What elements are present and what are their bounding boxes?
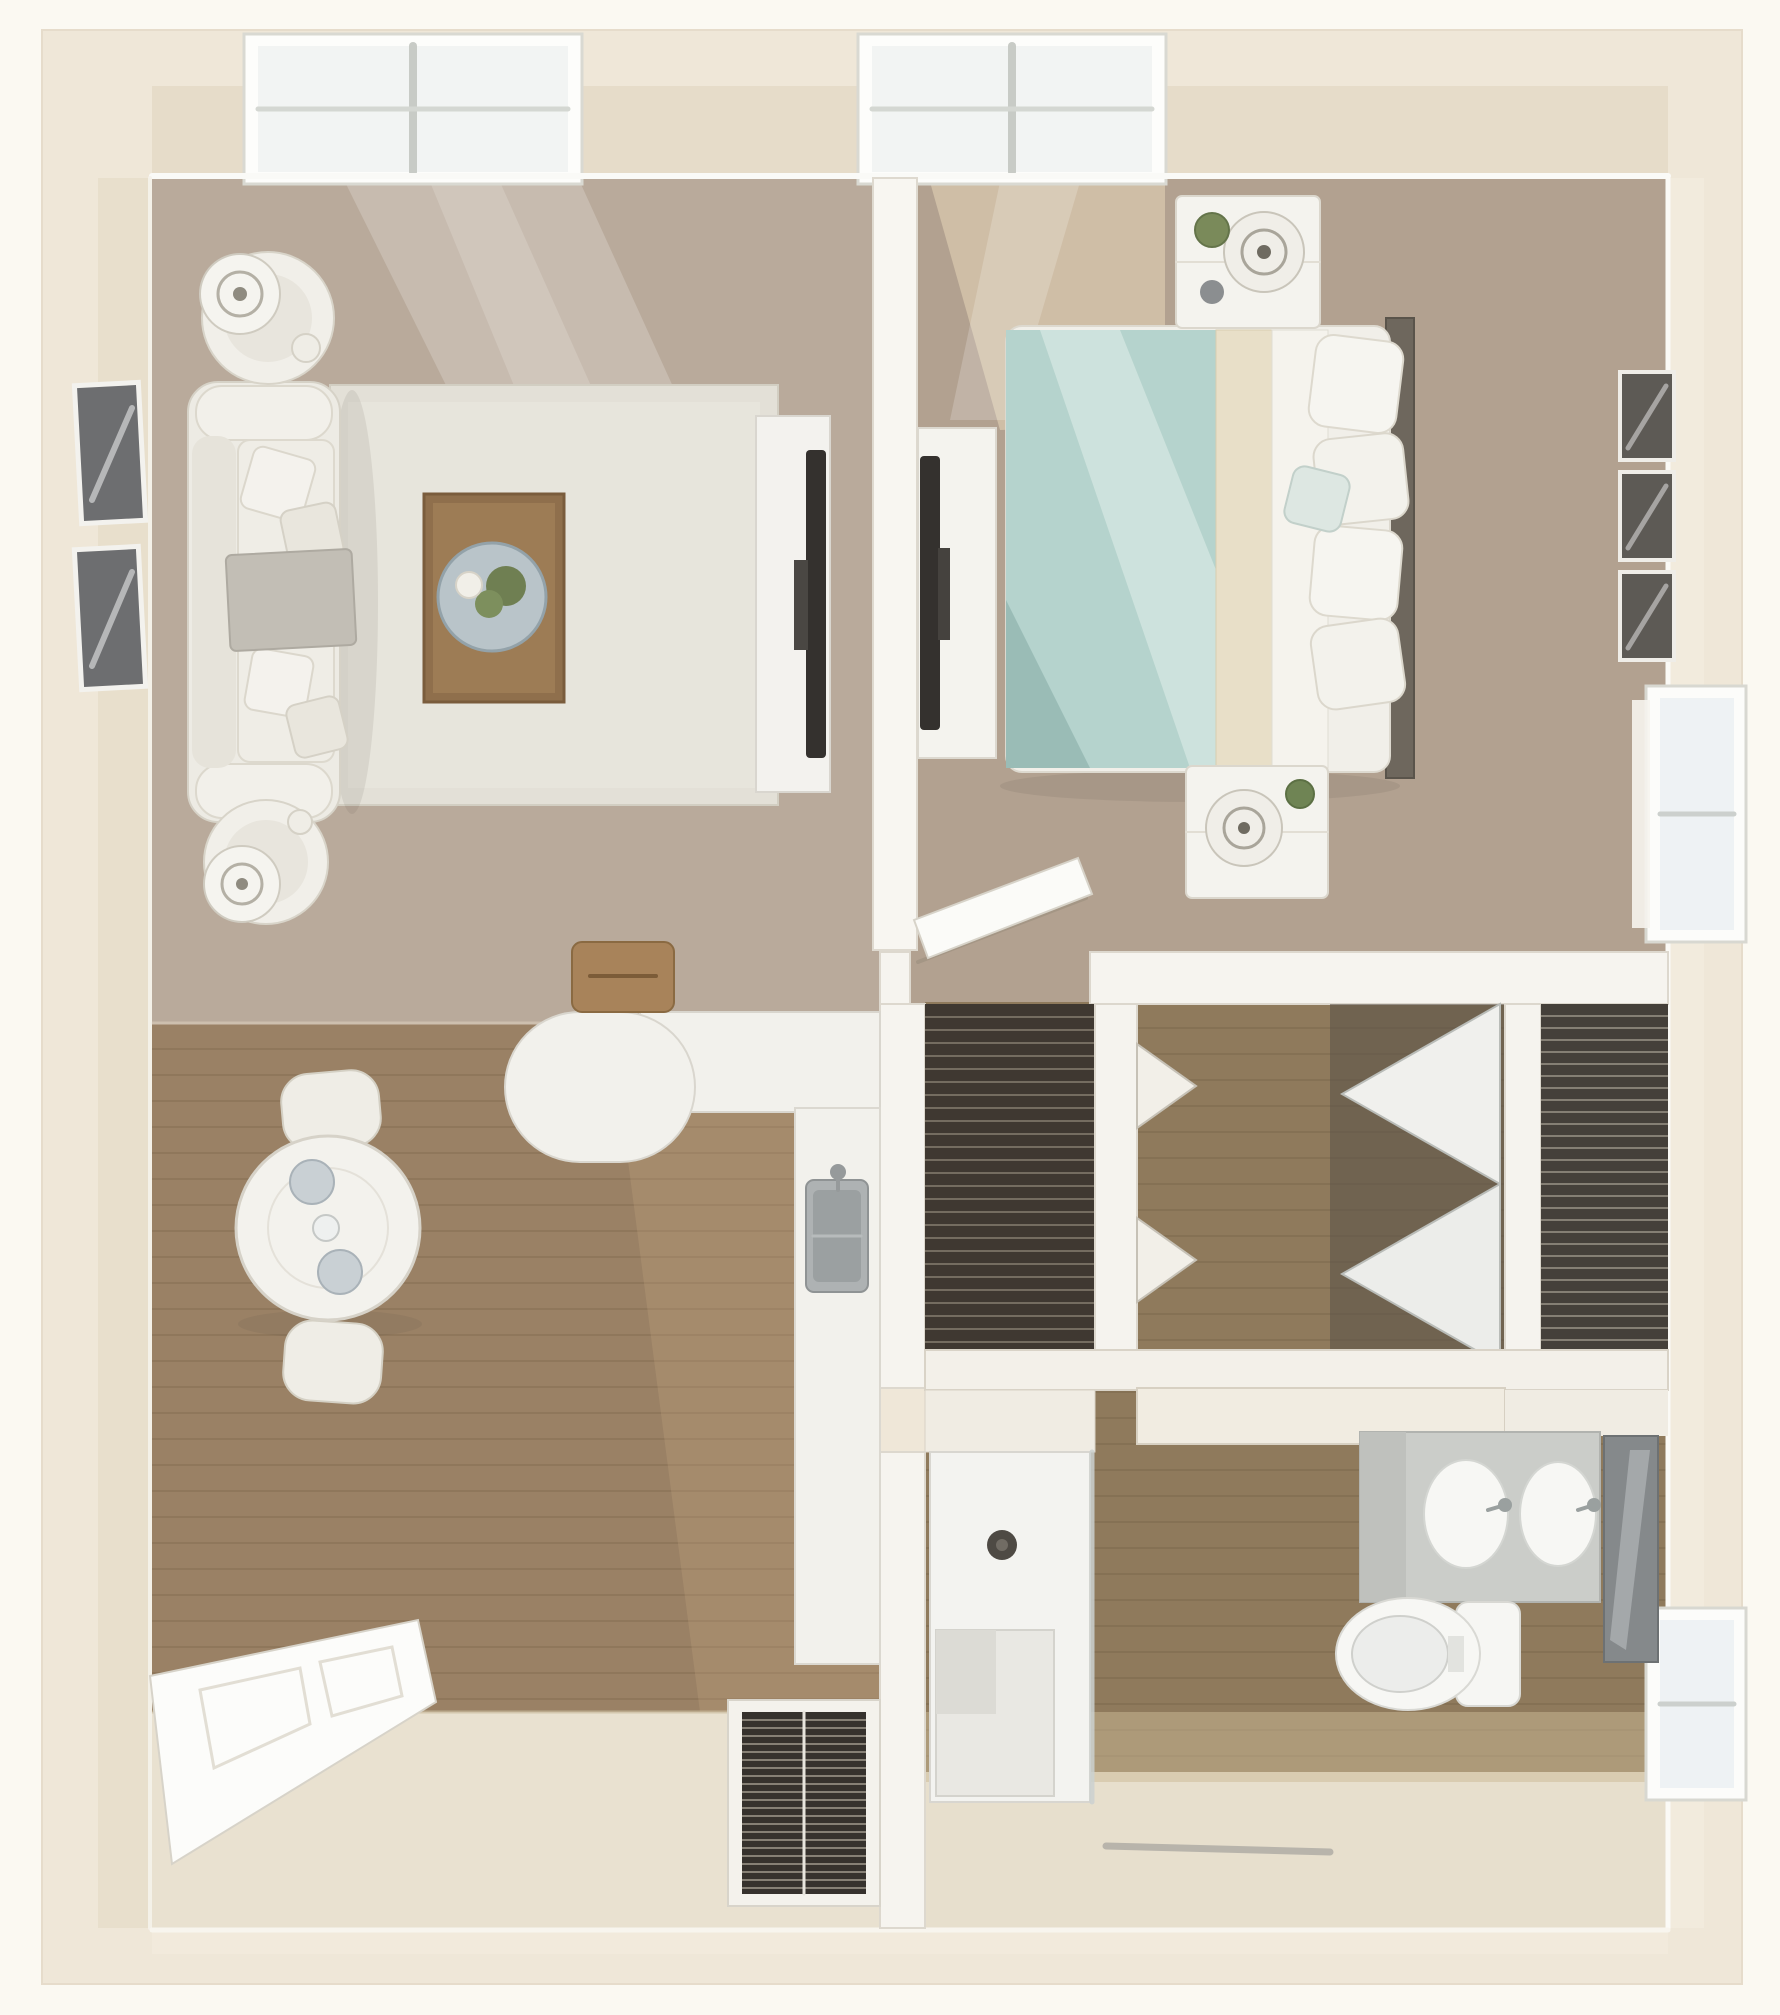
kitchen-peninsula-bulge: [505, 1012, 695, 1162]
nightstand-north-plant: [1195, 213, 1229, 247]
lamp-south-finial: [1238, 822, 1250, 834]
closet-counter-band: [925, 1350, 1668, 1390]
end-table-south-decor: [288, 810, 312, 834]
bath-block-top-wall-left: [880, 952, 910, 1004]
sofa-pillow-4: [284, 694, 349, 759]
shower-wall-ledge: [925, 1390, 1095, 1452]
closet-left-partition: [1095, 1004, 1137, 1350]
toilet-hinge: [1448, 1636, 1464, 1672]
vanity-sink-left: [1424, 1460, 1508, 1568]
toilet-seat: [1352, 1616, 1448, 1692]
end-table-north-decor: [292, 334, 320, 362]
table-lamp-south-finial: [236, 878, 248, 890]
dining-place-setting-south: [318, 1250, 362, 1294]
tv-living: [806, 450, 826, 758]
floorplan-stage: [0, 0, 1780, 2015]
bath-block-top-wall-right: [1090, 952, 1668, 1004]
tv-bedroom: [920, 456, 940, 730]
vanity-cabinet-side: [1360, 1432, 1406, 1602]
coffee-table-pitcher: [456, 572, 482, 598]
bed-accent-pillow: [1282, 464, 1352, 534]
sofa-armrest-top: [196, 386, 332, 440]
shower-drain-dot: [996, 1539, 1008, 1551]
bed-pillow-4: [1309, 616, 1408, 711]
dining-centerpiece: [313, 1215, 339, 1241]
nightstand-south-plant: [1286, 780, 1314, 808]
vanity-sink-right: [1520, 1462, 1596, 1566]
bed-blanket-cream: [1216, 330, 1278, 768]
living-bedroom-divider-wall: [873, 178, 917, 950]
dining-place-setting-north: [290, 1160, 334, 1204]
sofa-throw-blanket: [226, 549, 357, 651]
table-lamp-north-finial: [233, 287, 247, 301]
bath-left-wall-upper: [880, 1004, 925, 1388]
bed-pillow-1: [1307, 333, 1406, 435]
bed-pillow-3: [1308, 524, 1404, 621]
vanity-side-wall: [1505, 1390, 1668, 1436]
closet-left-interior: [925, 1004, 1095, 1350]
nightstand-north-dish: [1200, 280, 1224, 304]
shower-bench-step: [936, 1630, 996, 1714]
tv-living-mount: [794, 560, 808, 650]
tv-bedroom-mount: [938, 548, 950, 640]
bath-left-wall-lower: [880, 1452, 925, 1928]
closet-right-partition: [1505, 1004, 1541, 1364]
lamp-north-finial: [1257, 245, 1271, 259]
linen-closet-interior: [1541, 1004, 1668, 1352]
dining-chair-south: [281, 1319, 384, 1406]
floorplan-image: [0, 0, 1780, 2015]
bedroom-window-sill: [1632, 700, 1650, 928]
